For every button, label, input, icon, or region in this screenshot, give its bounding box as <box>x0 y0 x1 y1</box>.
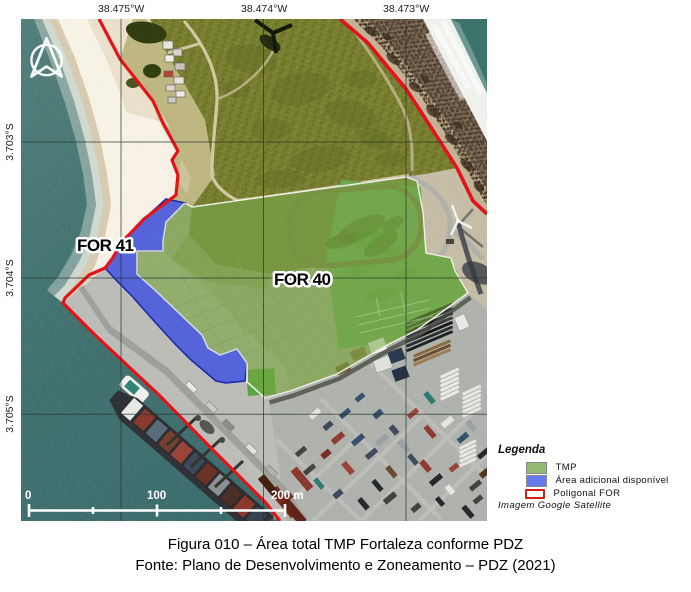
svg-text:FOR 41: FOR 41 <box>77 236 134 255</box>
svg-text:200 m: 200 m <box>271 490 304 502</box>
svg-text:0: 0 <box>25 490 31 502</box>
svg-text:100: 100 <box>147 490 166 502</box>
svg-text:FOR 40: FOR 40 <box>274 270 331 289</box>
